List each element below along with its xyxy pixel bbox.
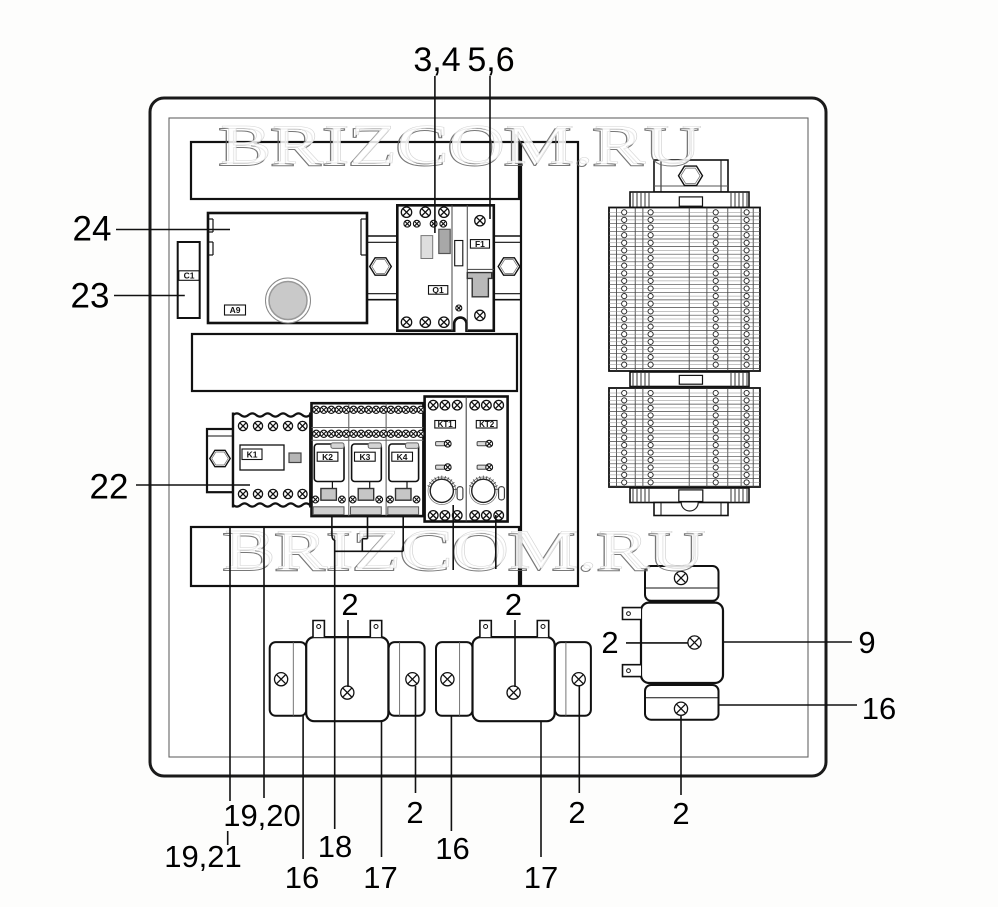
svg-text:A9: A9 <box>230 305 241 315</box>
svg-text:K4: K4 <box>397 452 408 462</box>
svg-text:16: 16 <box>435 831 469 866</box>
svg-text:C1: C1 <box>184 271 195 281</box>
svg-text:K3: K3 <box>359 452 370 462</box>
svg-text:2: 2 <box>568 795 585 830</box>
svg-text:23: 23 <box>71 277 110 316</box>
svg-text:BRIZCOM.RU: BRIZCOM.RU <box>220 114 702 176</box>
svg-text:24: 24 <box>73 210 112 249</box>
svg-text:16: 16 <box>285 860 319 895</box>
svg-text:KT1: KT1 <box>438 420 454 429</box>
svg-text:2: 2 <box>406 795 423 830</box>
svg-text:F1: F1 <box>475 239 485 249</box>
svg-text:9: 9 <box>858 625 875 660</box>
svg-text:2: 2 <box>601 625 618 660</box>
svg-text:BRIZCOM.RU: BRIZCOM.RU <box>224 519 706 581</box>
svg-text:2: 2 <box>505 587 522 622</box>
svg-text:2: 2 <box>341 587 358 622</box>
svg-text:2: 2 <box>672 796 689 831</box>
svg-text:19,21: 19,21 <box>164 839 242 874</box>
svg-text:KT2: KT2 <box>479 420 495 429</box>
svg-text:K2: K2 <box>322 452 333 462</box>
svg-text:19,20: 19,20 <box>223 798 301 833</box>
svg-text:17: 17 <box>524 860 558 895</box>
svg-text:17: 17 <box>363 860 397 895</box>
svg-text:3,4: 3,4 <box>413 41 460 79</box>
svg-text:18: 18 <box>318 829 352 864</box>
svg-text:5,6: 5,6 <box>467 41 514 79</box>
svg-text:22: 22 <box>90 468 129 507</box>
svg-text:Q1: Q1 <box>432 285 444 295</box>
svg-text:K1: K1 <box>247 449 258 459</box>
svg-text:16: 16 <box>862 691 896 726</box>
